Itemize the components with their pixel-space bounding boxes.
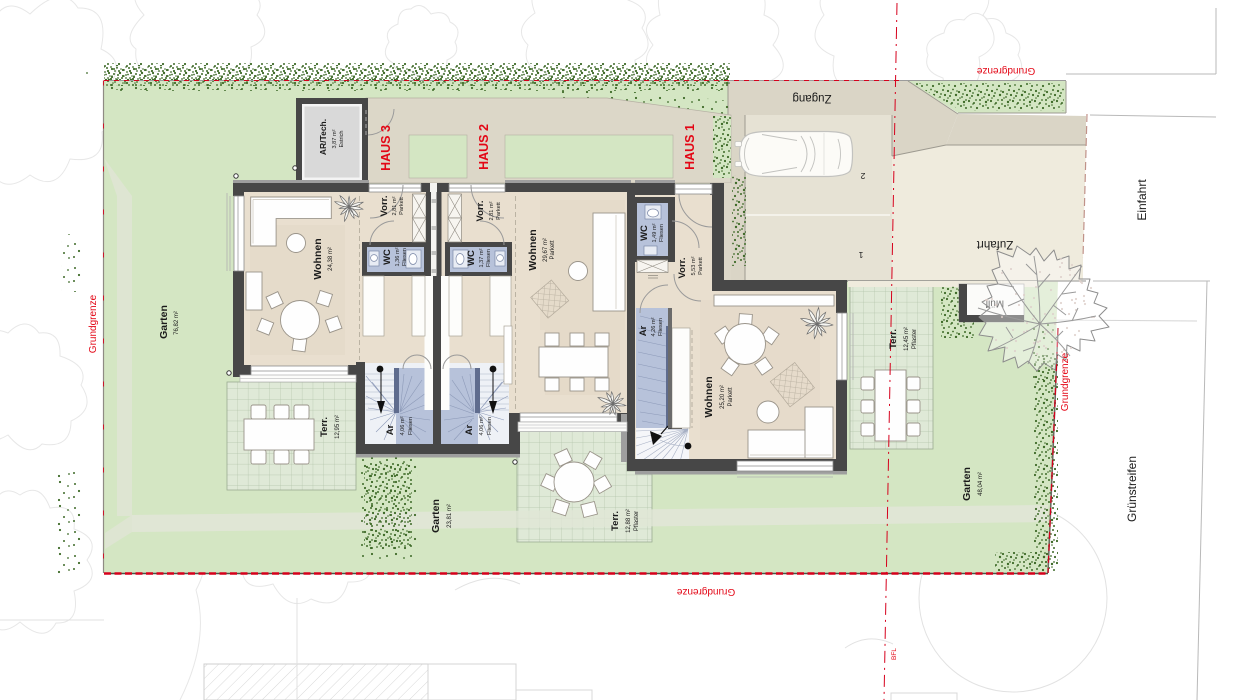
svg-text:WC: WC [639,225,650,241]
svg-text:Grundgrenze: Grundgrenze [1060,352,1071,411]
svg-text:Vorr.: Vorr. [379,196,390,217]
svg-text:Parkett: Parkett [550,240,556,259]
svg-text:Vorr.: Vorr. [475,201,486,222]
svg-text:Grundgrenze: Grundgrenze [88,294,99,353]
svg-text:2: 2 [860,171,865,181]
svg-text:1,49 m²: 1,49 m² [652,223,658,242]
svg-text:Fliesen: Fliesen [658,318,664,336]
svg-text:Wohnen: Wohnen [703,376,715,417]
svg-text:Grundgrenze: Grundgrenze [976,65,1035,76]
svg-text:Terr.: Terr. [610,511,621,531]
svg-text:Terr.: Terr. [319,417,330,437]
svg-text:Fliesen: Fliesen [486,249,492,267]
svg-text:Ar: Ar [638,325,649,336]
svg-text:Zufahrt: Zufahrt [976,238,1013,250]
svg-text:BFL: BFL [891,648,898,660]
svg-text:HAUS 3: HAUS 3 [379,125,393,171]
svg-text:Zugang: Zugang [792,92,831,104]
svg-text:WC: WC [466,250,477,266]
svg-text:Fliesen: Fliesen [487,417,493,435]
svg-text:23,81 m²: 23,81 m² [447,504,453,528]
svg-text:Fliesen: Fliesen [659,224,665,242]
svg-text:Fliesen: Fliesen [402,248,408,266]
svg-text:Pflaster: Pflaster [634,511,640,531]
svg-text:12,45 m²: 12,45 m² [904,327,910,351]
svg-text:Garten: Garten [961,467,973,501]
svg-text:76,82 m²: 76,82 m² [174,311,180,335]
svg-text:4,06 m²: 4,06 m² [479,416,485,435]
svg-text:Parkett: Parkett [399,197,405,215]
svg-text:48,04 m²: 48,04 m² [978,472,984,496]
svg-text:Wohnen: Wohnen [312,238,324,279]
svg-text:Parkett: Parkett [728,387,734,406]
svg-text:25,20 m²: 25,20 m² [720,385,726,409]
svg-text:Grundgrenze: Grundgrenze [676,586,735,597]
svg-text:4,06 m²: 4,06 m² [400,416,406,435]
svg-text:4,26 m²: 4,26 m² [651,317,657,336]
svg-text:Ar: Ar [464,424,475,435]
svg-text:Einfahrt: Einfahrt [1135,179,1149,221]
svg-text:3,87 m²: 3,87 m² [332,129,338,148]
svg-text:Garten: Garten [430,499,442,533]
svg-text:Pflaster: Pflaster [912,329,918,349]
svg-text:Garten: Garten [158,305,170,339]
svg-text:Parkett: Parkett [698,257,704,275]
svg-text:1: 1 [858,250,863,260]
svg-text:Terr.: Terr. [888,329,899,349]
svg-text:WC: WC [382,249,393,265]
svg-text:1,36 m²: 1,36 m² [395,247,401,266]
svg-text:Ar: Ar [385,424,396,435]
svg-text:AR/Tech.: AR/Tech. [318,119,328,155]
svg-text:HAUS 2: HAUS 2 [477,124,491,170]
svg-text:12,95 m²: 12,95 m² [335,415,341,439]
svg-text:HAUS 1: HAUS 1 [683,124,697,170]
svg-text:2,81 m²: 2,81 m² [489,201,495,220]
svg-text:Vorr.: Vorr. [677,258,688,279]
svg-text:Grünstreifen: Grünstreifen [1125,456,1139,522]
svg-text:1,37 m²: 1,37 m² [479,248,485,267]
svg-text:Estrich: Estrich [339,130,345,147]
svg-text:12,88 m²: 12,88 m² [626,509,632,533]
svg-text:5,53 m²: 5,53 m² [691,256,697,275]
svg-text:29,67 m²: 29,67 m² [543,238,549,262]
svg-text:2,81 m²: 2,81 m² [392,196,398,215]
svg-text:Fliesen: Fliesen [408,417,414,435]
svg-text:Parkett: Parkett [496,202,502,220]
svg-text:24,38 m²: 24,38 m² [328,247,334,271]
svg-text:Wohnen: Wohnen [527,229,539,270]
